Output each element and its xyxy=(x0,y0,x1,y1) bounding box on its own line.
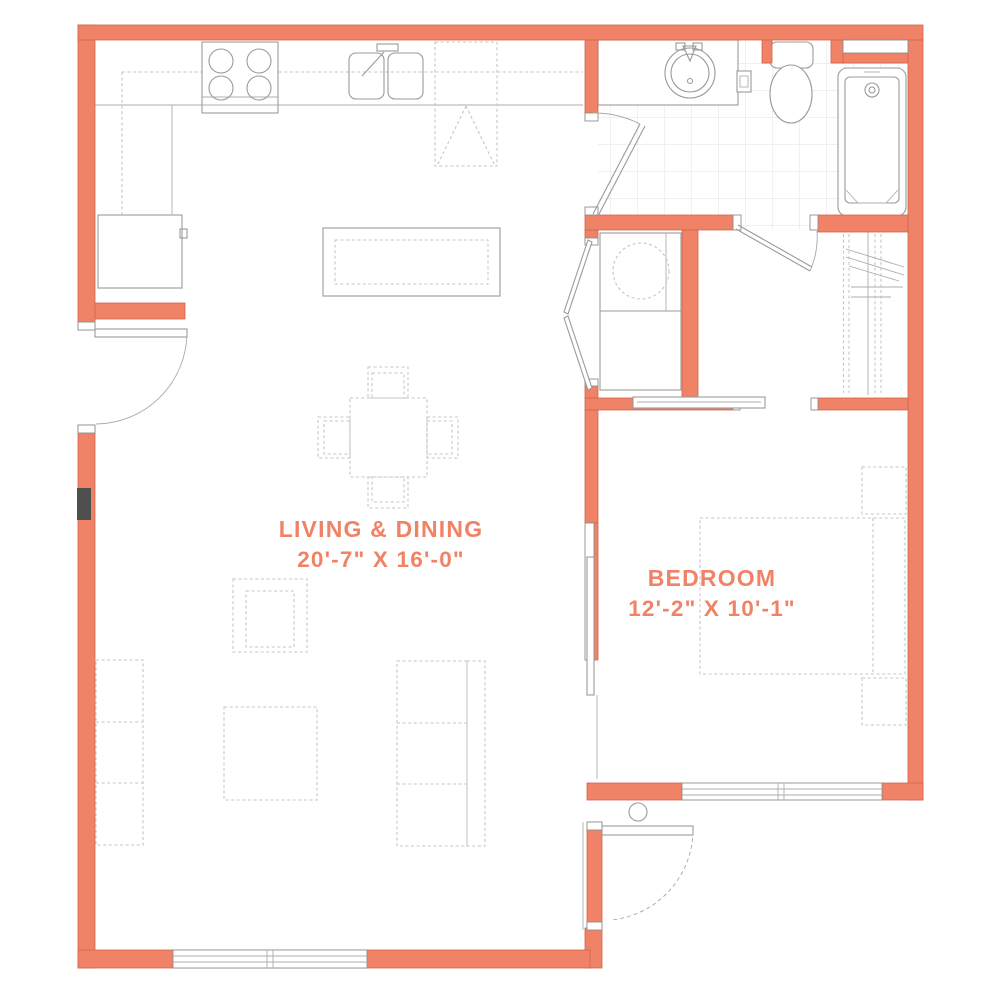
floor-plan: LIVING & DINING 20'-7" X 16'-0" BEDROOM … xyxy=(0,0,1000,1000)
right-wall xyxy=(908,40,923,800)
windows xyxy=(173,783,882,968)
kitchen xyxy=(95,42,583,296)
closet-shelf xyxy=(633,397,765,408)
bedroom-label: BEDROOM xyxy=(648,565,777,591)
kitchen-bath-wall xyxy=(585,40,598,115)
closet-shelf-line xyxy=(849,266,899,281)
top-wall xyxy=(78,25,923,40)
jamb xyxy=(78,322,95,330)
closet-bottom-wall-right xyxy=(818,398,908,410)
living-dining-label: LIVING & DINING xyxy=(279,516,484,542)
kitchen-island xyxy=(323,228,500,296)
closet-door xyxy=(736,225,817,271)
tile-doorway xyxy=(733,217,818,230)
vestibule-wall xyxy=(587,822,602,930)
entry-door xyxy=(602,803,693,920)
bath-pilaster xyxy=(762,40,772,63)
tub-shelf xyxy=(843,40,908,53)
jamb xyxy=(811,398,818,410)
sofa xyxy=(397,661,485,846)
dishwasher-icon xyxy=(435,42,497,166)
electrical-panel xyxy=(77,488,91,520)
armchair xyxy=(233,579,307,652)
dining-chair xyxy=(368,367,408,398)
nightstand xyxy=(862,678,906,725)
stove-icon xyxy=(202,42,278,113)
tub-niche-stub xyxy=(831,40,843,63)
room-labels: LIVING & DINING 20'-7" X 16'-0" BEDROOM … xyxy=(279,516,796,621)
living-room-furniture xyxy=(96,579,485,846)
floor-plan-drawing: LIVING & DINING 20'-7" X 16'-0" BEDROOM … xyxy=(0,0,1000,1000)
dining-table xyxy=(350,398,427,477)
bedroom-dimensions: 12'-2" X 10'-1" xyxy=(628,596,796,621)
vanity-sink-icon xyxy=(598,40,751,105)
bedroom-bottom-wall-right xyxy=(882,783,923,800)
window-bottom xyxy=(173,950,367,968)
dining-set xyxy=(318,367,458,508)
pocket-door-wall-sliver xyxy=(594,523,598,660)
bath-bottom-wall-right xyxy=(818,215,908,232)
washer-dryer-icon xyxy=(600,233,681,390)
laundry-closet xyxy=(600,233,681,390)
dining-chair xyxy=(427,417,458,458)
laundry-wall xyxy=(682,230,698,398)
side-entry-door xyxy=(95,329,187,424)
dining-chair xyxy=(318,417,350,458)
jamb xyxy=(78,425,95,433)
bathtub-icon xyxy=(838,68,906,216)
console xyxy=(96,660,143,845)
toilet-icon xyxy=(770,42,813,123)
jamb xyxy=(587,922,602,930)
living-dining-dimensions: 20'-7" X 16'-0" xyxy=(297,547,465,572)
closet-shelf-line xyxy=(846,257,904,275)
ottoman xyxy=(224,707,317,800)
kitchen-stub-wall xyxy=(95,303,185,319)
bath-bottom-wall-left xyxy=(585,215,733,230)
jamb xyxy=(585,113,598,121)
jamb xyxy=(810,215,818,230)
window-bedroom xyxy=(682,783,882,800)
walk-in-closet xyxy=(844,232,905,395)
left-wall-upper xyxy=(78,25,95,330)
refrigerator-icon xyxy=(98,215,187,288)
jamb xyxy=(587,822,602,830)
dining-chair xyxy=(368,477,408,508)
nightstand xyxy=(862,467,906,514)
bedroom-bottom-wall-left xyxy=(587,783,682,800)
tub-shelf-wall xyxy=(843,53,908,63)
jamb xyxy=(733,215,741,230)
bedroom-left-wall xyxy=(585,410,598,523)
bifold-doors xyxy=(564,240,592,390)
